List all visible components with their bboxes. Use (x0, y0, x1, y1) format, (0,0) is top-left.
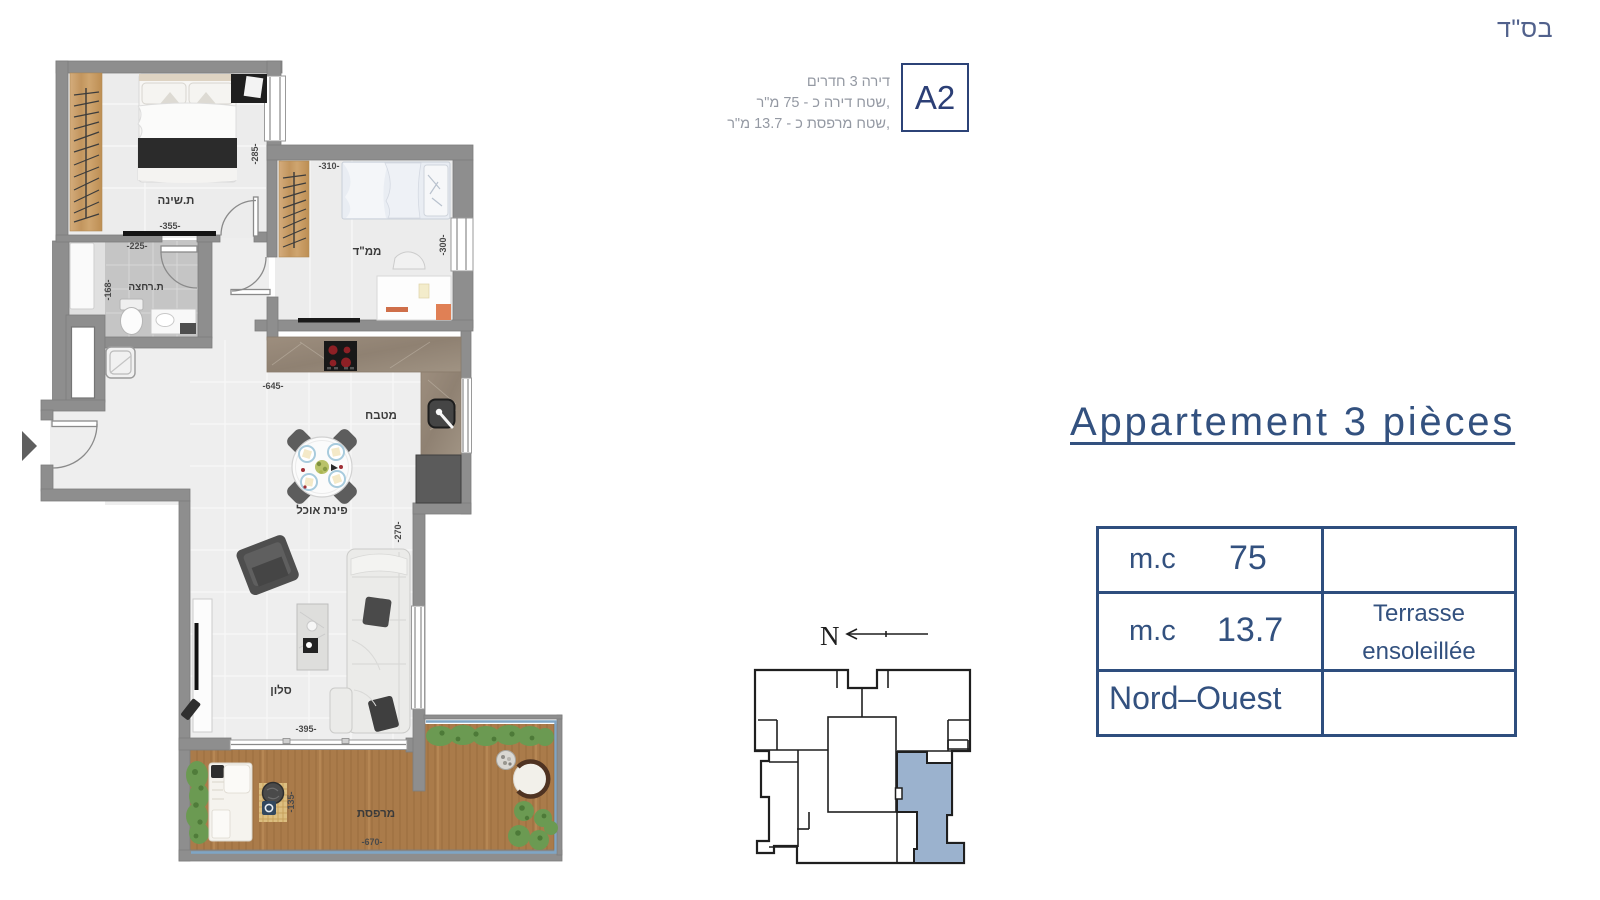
svg-text:ממ"ד: ממ"ד (353, 246, 382, 258)
svg-text:-355-: -355- (159, 221, 180, 231)
svg-text:-135-: -135- (286, 791, 296, 812)
svg-text:-270-: -270- (393, 521, 403, 542)
svg-text:סלון: סלון (270, 684, 292, 697)
svg-text:מרפסת: מרפסת (357, 808, 395, 820)
svg-text:-670-: -670- (361, 837, 382, 847)
svg-text:פינת אוכל: פינת אוכל (296, 504, 347, 517)
svg-text:-395-: -395- (295, 724, 316, 734)
svg-text:-645-: -645- (262, 381, 283, 391)
svg-text:-225-: -225- (126, 241, 147, 251)
svg-text:-300-: -300- (438, 234, 448, 255)
svg-text:-285-: -285- (250, 143, 260, 164)
svg-text:מטבח: מטבח (365, 410, 397, 422)
svg-text:-168-: -168- (103, 279, 113, 300)
svg-text:ת.שינה: ת.שינה (158, 195, 195, 207)
svg-text:N: N (820, 621, 840, 651)
svg-text:ת.רחצה: ת.רחצה (128, 282, 163, 293)
svg-text:-310-: -310- (318, 161, 339, 171)
